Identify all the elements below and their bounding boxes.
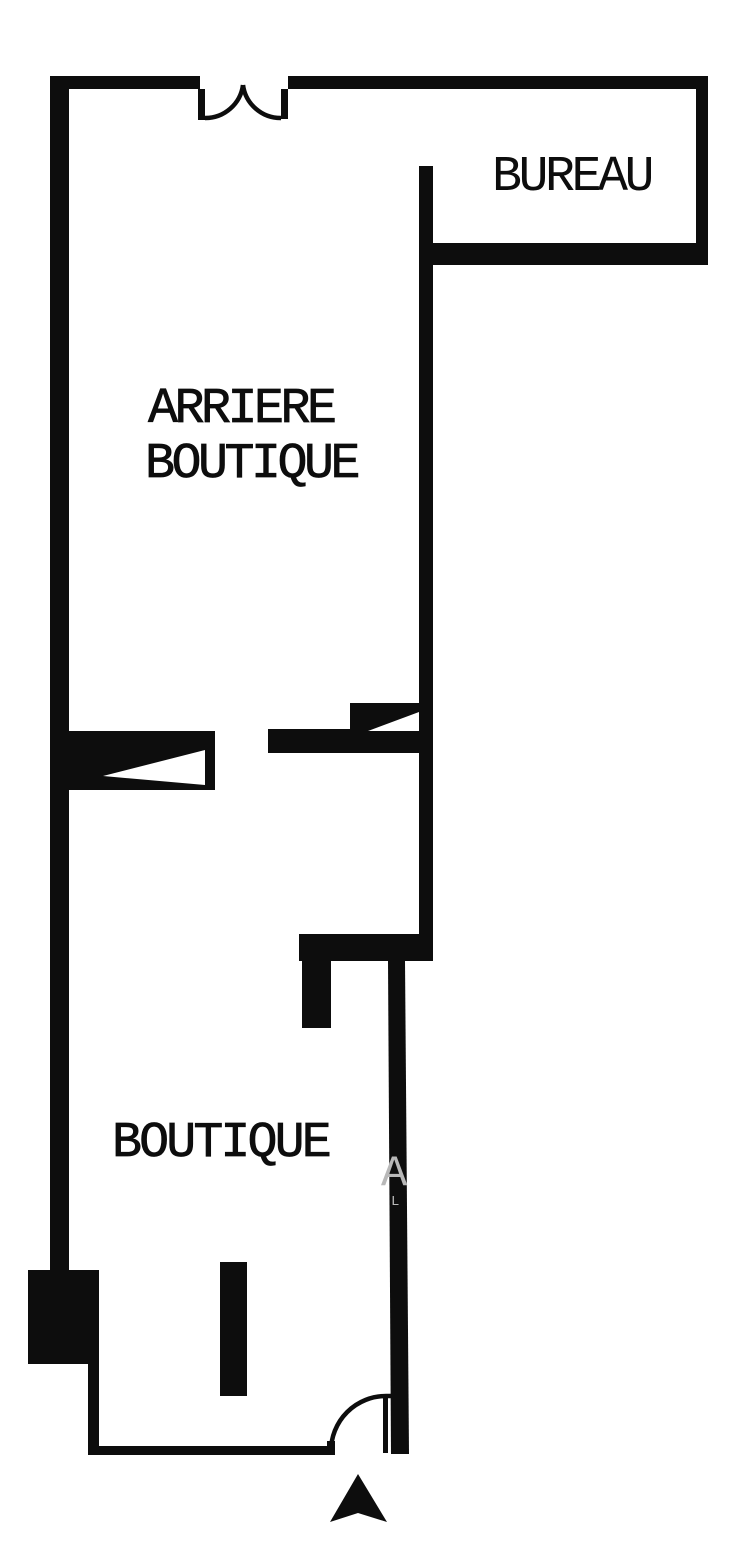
svg-text:BOUTIQUE: BOUTIQUE — [112, 1115, 330, 1172]
svg-text:ARRIERE: ARRIERE — [148, 381, 335, 438]
svg-text:BUREAU: BUREAU — [492, 149, 652, 206]
svg-text:A: A — [381, 1149, 408, 1199]
svg-text:BOUTIQUE: BOUTIQUE — [145, 436, 359, 493]
svg-text:L: L — [391, 1194, 399, 1210]
